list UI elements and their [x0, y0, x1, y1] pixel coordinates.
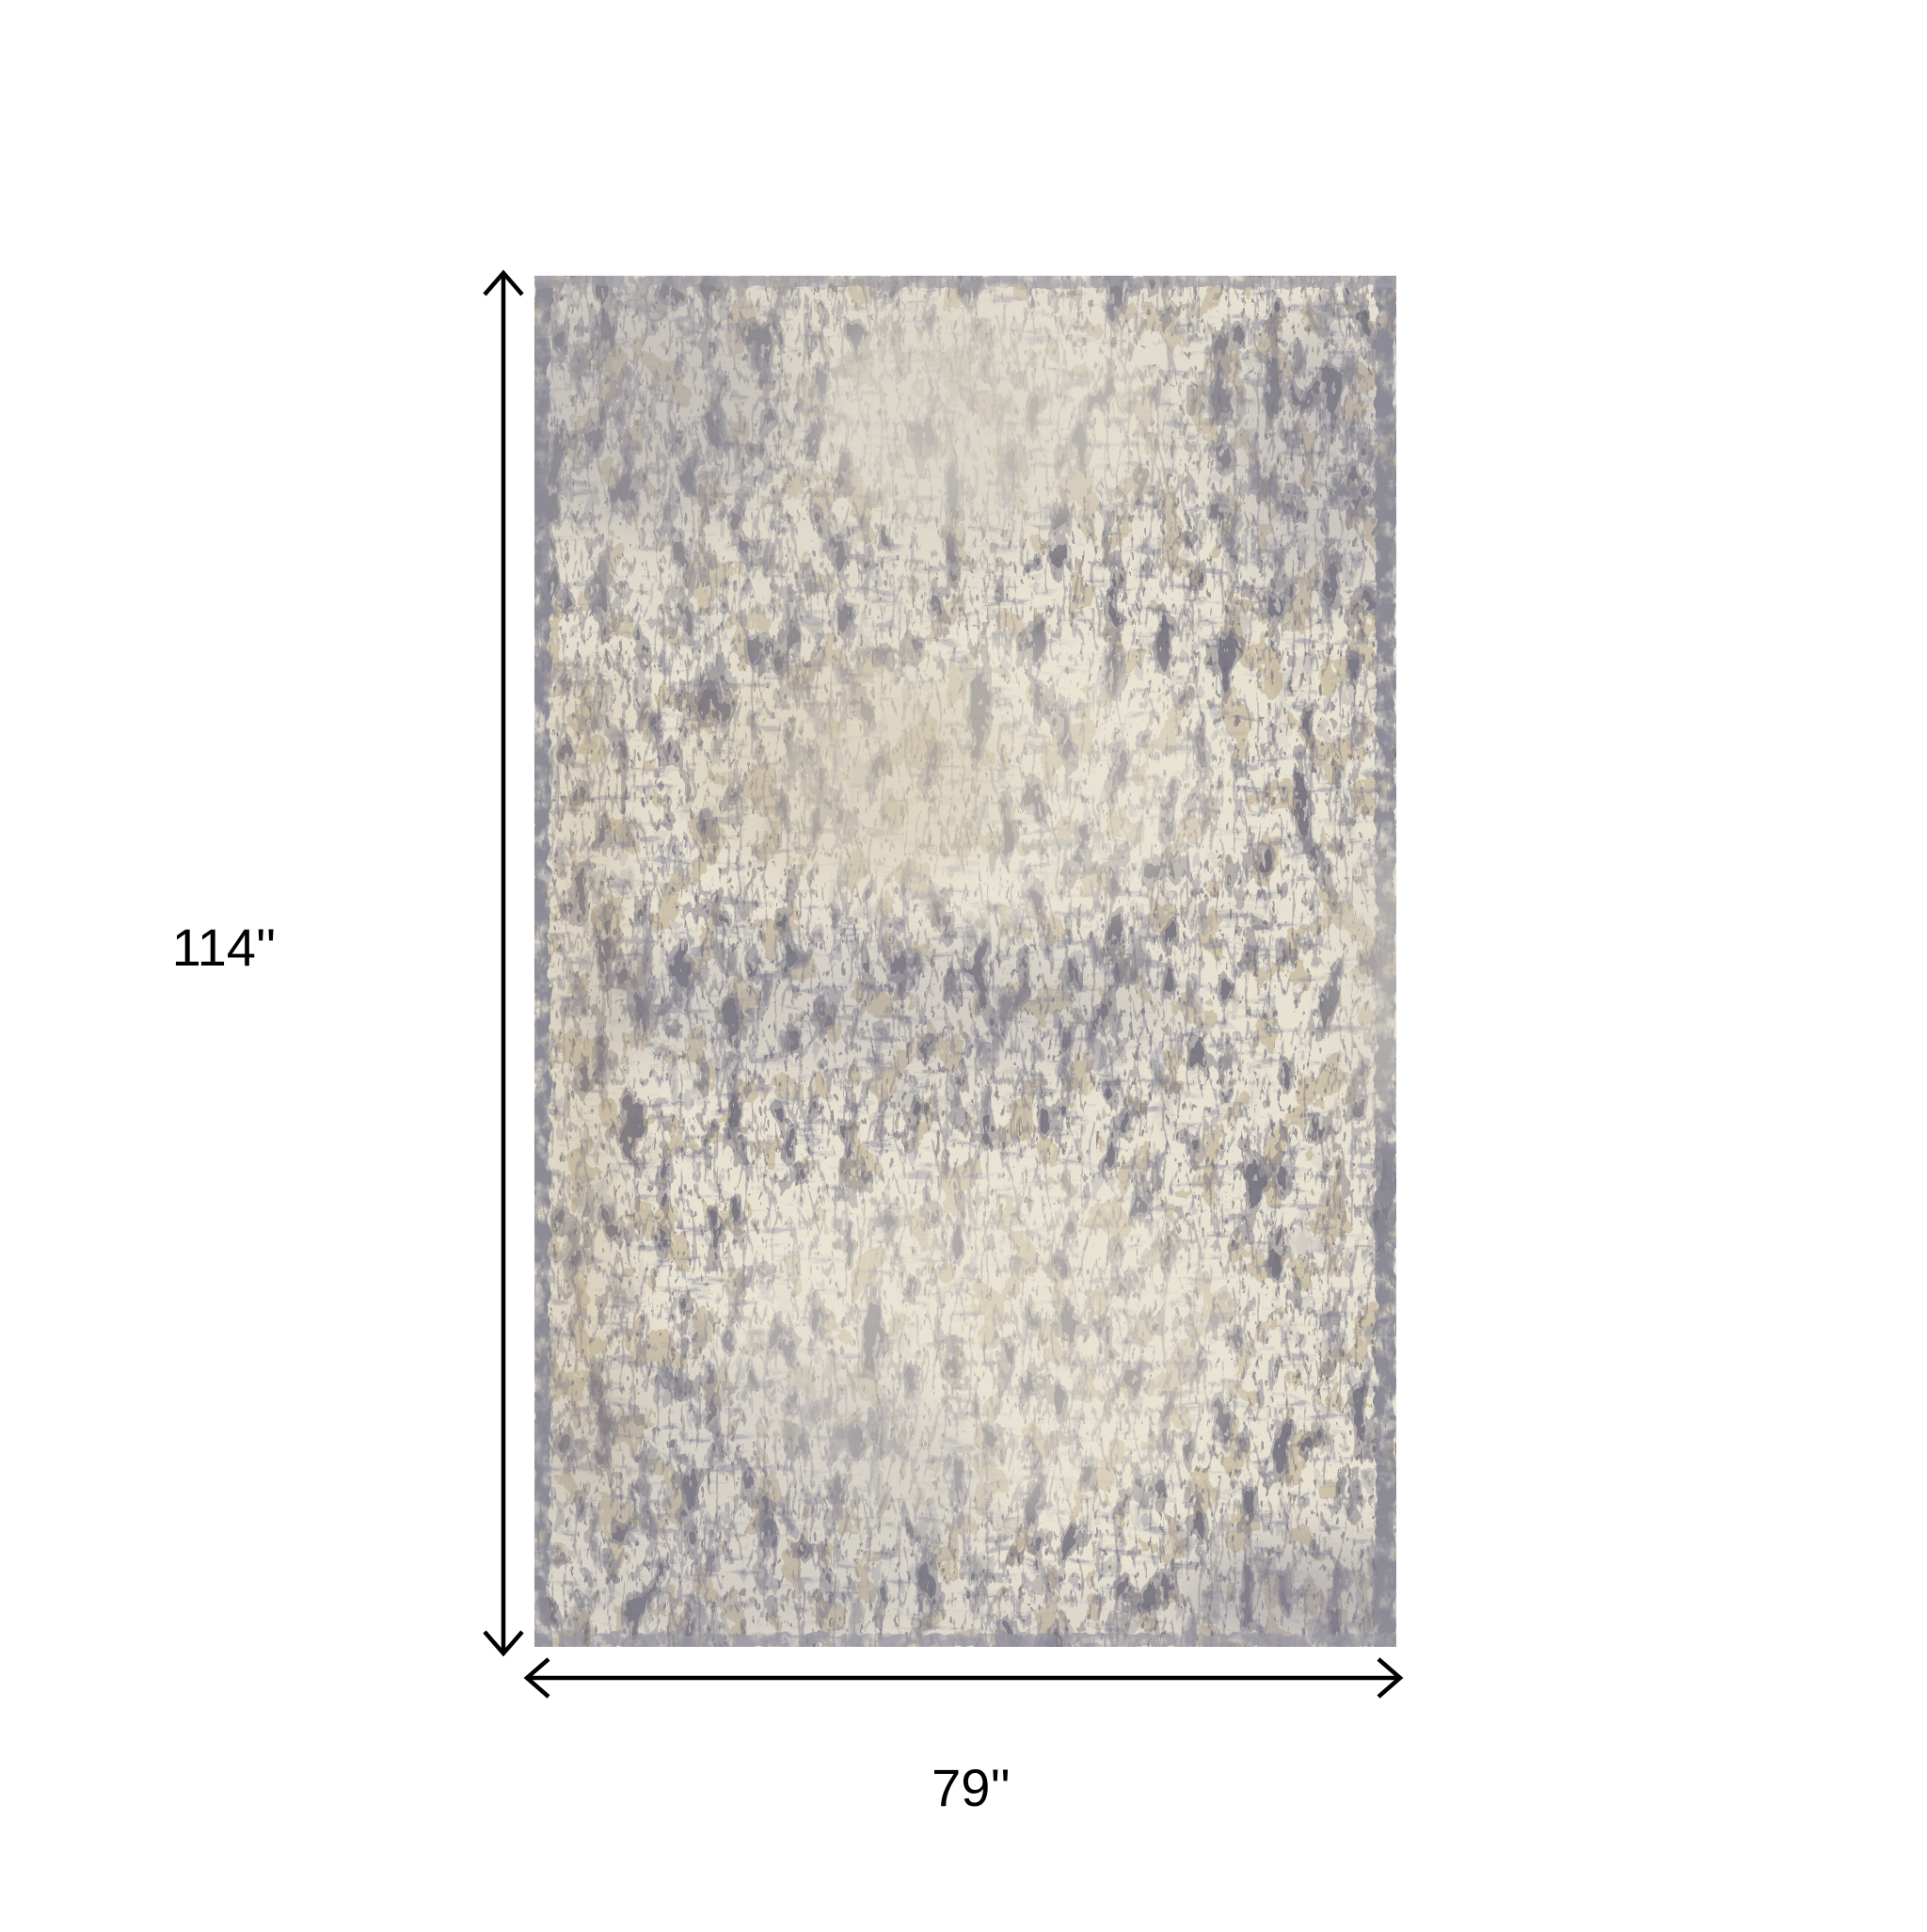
svg-text:114'': 114'': [172, 918, 277, 977]
svg-text:79'': 79'': [932, 1758, 1011, 1817]
